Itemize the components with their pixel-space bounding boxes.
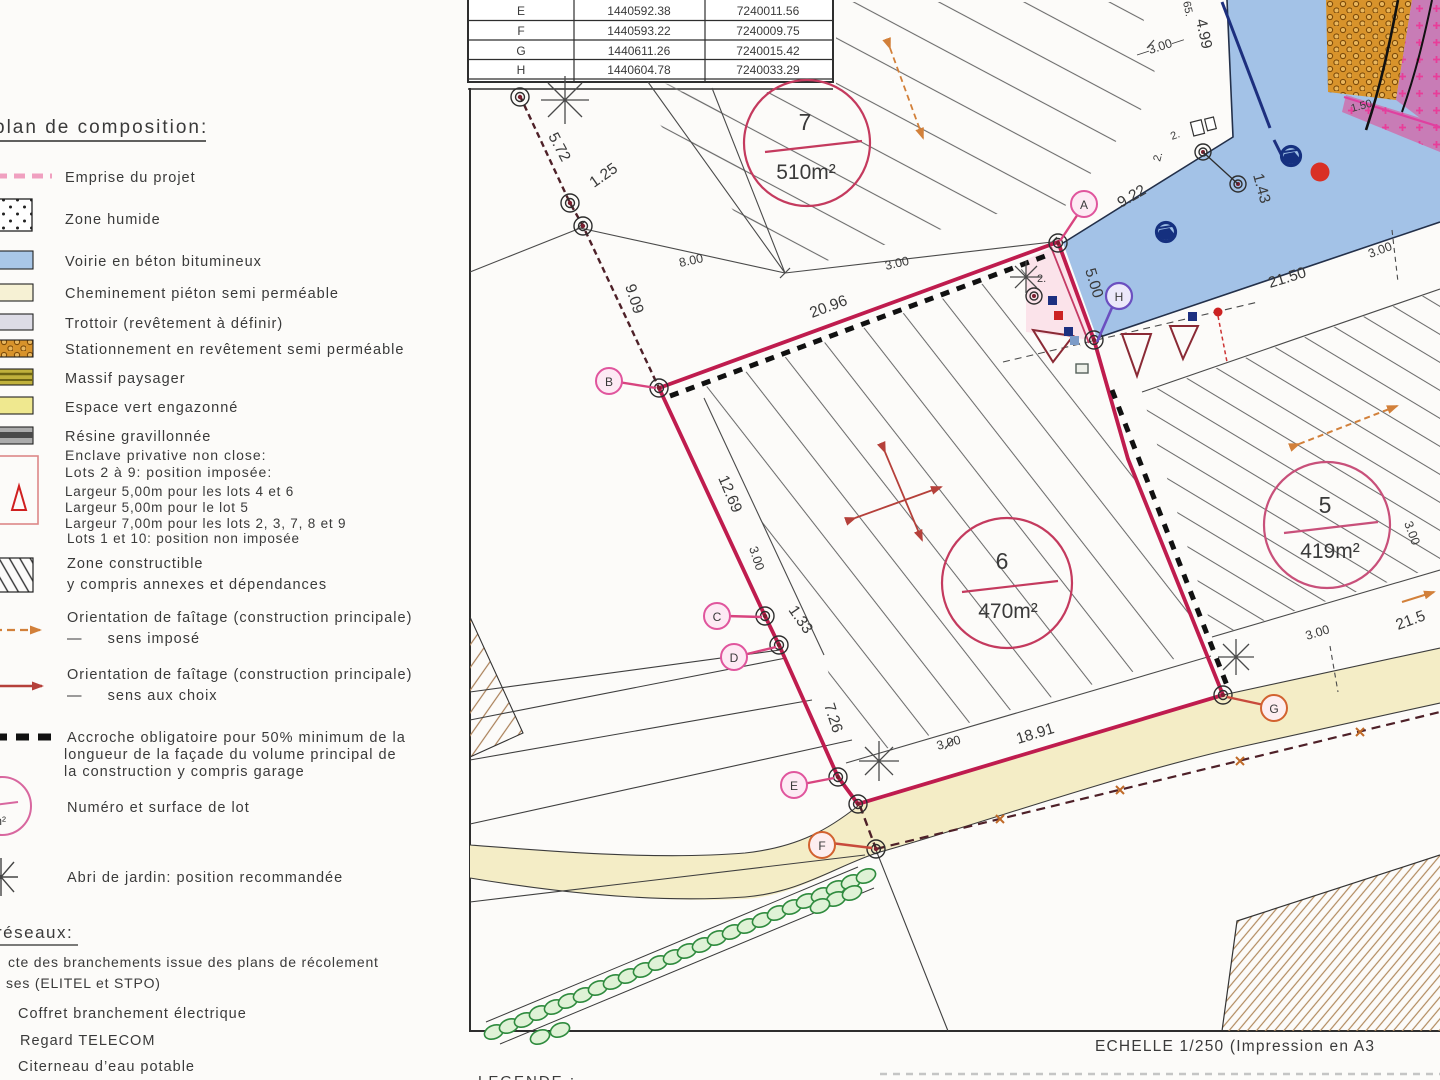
svg-text:G: G: [1269, 702, 1278, 716]
svg-text:Regard TELECOM: Regard TELECOM: [20, 1033, 155, 1049]
svg-text:1440604.78: 1440604.78: [607, 63, 671, 77]
svg-text:Résine gravillonnée: Résine gravillonnée: [65, 429, 211, 445]
svg-text:Coffret branchement électriq: Coffret branchement électrique: [18, 1006, 247, 1022]
svg-text:Accroche obligatoire pour 5: Accroche obligatoire pour 50% minimum de…: [67, 730, 406, 746]
svg-text:Emprise du projet: Emprise du projet: [65, 170, 196, 186]
svg-text:Stationnement en revêtement: Stationnement en revêtement semi perméab…: [65, 342, 404, 358]
svg-text:Cheminement piéton semi per: Cheminement piéton semi perméable: [65, 286, 339, 302]
svg-text:6: 6: [996, 548, 1009, 574]
svg-text:2.: 2.: [1037, 273, 1046, 285]
svg-text:Citerneau d’eau potable: Citerneau d’eau potable: [18, 1059, 195, 1075]
svg-text:7240033.29: 7240033.29: [736, 63, 800, 77]
svg-text:1440611.26: 1440611.26: [608, 44, 671, 58]
svg-text:7240009.75: 7240009.75: [736, 24, 800, 38]
svg-text:Zone humide: Zone humide: [65, 212, 161, 228]
svg-text:— sens aux choix: — sens aux choix: [67, 688, 218, 704]
svg-text:C: C: [713, 610, 722, 624]
svg-text:Largeur 7,00m pour les lot: Largeur 7,00m pour les lots 2, 3, 7, 8 e…: [65, 516, 346, 531]
svg-text:longueur de la façade du: longueur de la façade du volume principa…: [64, 747, 397, 763]
svg-text:Enclave privative non close: Enclave privative non close:: [65, 447, 267, 463]
svg-text:G: G: [516, 44, 525, 58]
svg-text:Largeur 5,00m pour le lot: Largeur 5,00m pour le lot 5: [65, 500, 249, 515]
svg-text:— sens imposé: — sens imposé: [67, 631, 200, 647]
svg-text:7240011.56: 7240011.56: [737, 4, 800, 18]
svg-text:D: D: [730, 651, 739, 665]
svg-text:Massif paysager: Massif paysager: [65, 371, 186, 387]
svg-text:H: H: [517, 63, 526, 77]
svg-text:7: 7: [799, 109, 812, 135]
svg-text:Voirie en béton bitumineux: Voirie en béton bitumineux: [65, 254, 262, 270]
svg-text:Trottoir (revêtement à défi: Trottoir (revêtement à définir): [65, 316, 283, 332]
svg-text:B: B: [605, 375, 613, 389]
svg-text:m²: m²: [0, 814, 6, 828]
svg-text:7240015.42: 7240015.42: [736, 44, 800, 58]
svg-text:cte des branchements issue: cte des branchements issue des plans de …: [8, 954, 379, 970]
svg-text:470m²: 470m²: [978, 600, 1038, 623]
svg-text:Abri de jardin: position r: Abri de jardin: position recommandée: [67, 870, 343, 886]
svg-text:1440592.38: 1440592.38: [607, 4, 671, 18]
svg-text:ses (ELITEL et STPO): ses (ELITEL et STPO): [6, 975, 161, 991]
svg-text:Lots 2 à 9: position impo: Lots 2 à 9: position imposée:: [65, 464, 272, 480]
svg-text:A: A: [1080, 198, 1088, 212]
svg-text:Numéro et surface de lot: Numéro et surface de lot: [67, 800, 250, 816]
svg-text:y compris annexes et dépen: y compris annexes et dépendances: [67, 577, 327, 593]
svg-text:plan de composition:: plan de composition:: [0, 117, 208, 138]
svg-text:Zone constructible: Zone constructible: [67, 556, 203, 572]
svg-text:ECHELLE 1/250 (Impression e: ECHELLE 1/250 (Impression en A3: [1095, 1038, 1375, 1055]
svg-text:F: F: [818, 839, 825, 853]
svg-text:5: 5: [1319, 492, 1332, 518]
svg-text:Lots 1 et 10: position no: Lots 1 et 10: position non imposée: [67, 531, 300, 546]
svg-text:Orientation de faîtage (con: Orientation de faîtage (construction pri…: [67, 610, 412, 626]
svg-text:Largeur 5,00m pour les lot: Largeur 5,00m pour les lots 4 et 6: [65, 484, 294, 499]
svg-text:E: E: [517, 4, 525, 18]
svg-text:H: H: [1115, 290, 1124, 304]
svg-text:510m²: 510m²: [776, 161, 836, 184]
svg-text:réseaux:: réseaux:: [0, 923, 73, 942]
svg-text:Espace vert engazonné: Espace vert engazonné: [65, 400, 238, 416]
svg-text:419m²: 419m²: [1300, 540, 1360, 563]
svg-text:la construction y compris: la construction y compris garage: [64, 764, 305, 780]
svg-text:F: F: [517, 24, 524, 38]
svg-text:LEGENDE :: LEGENDE :: [478, 1073, 576, 1080]
svg-text:1440593.22: 1440593.22: [607, 24, 671, 38]
svg-text:Orientation de faîtage (con: Orientation de faîtage (construction pri…: [67, 667, 412, 683]
svg-text:E: E: [790, 779, 798, 793]
